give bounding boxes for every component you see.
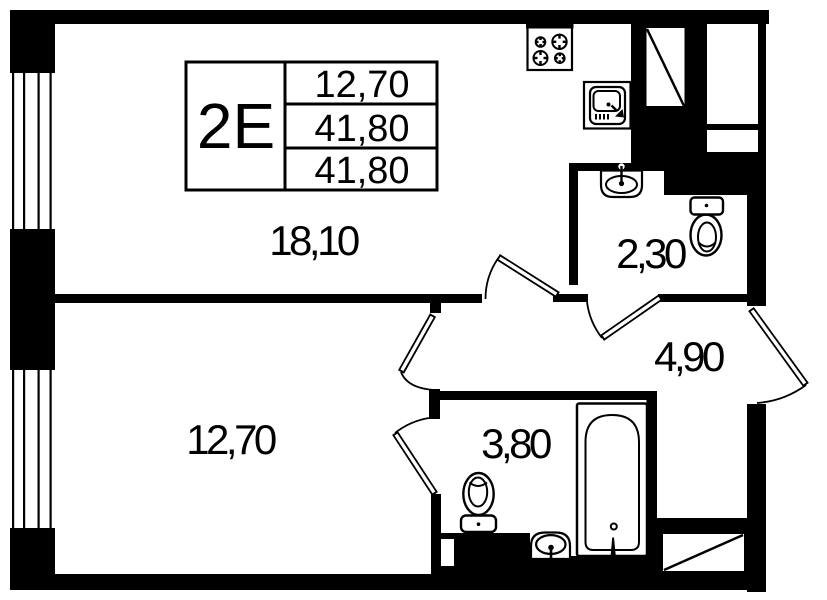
svg-text:2,30: 2,30 bbox=[616, 230, 686, 277]
svg-text:41,80: 41,80 bbox=[314, 150, 409, 192]
svg-text:12,70: 12,70 bbox=[186, 416, 276, 463]
svg-text:41,80: 41,80 bbox=[314, 108, 409, 150]
svg-text:2E: 2E bbox=[197, 90, 275, 162]
svg-text:18,10: 18,10 bbox=[269, 217, 359, 264]
svg-text:12,70: 12,70 bbox=[314, 64, 409, 106]
svg-text:3,80: 3,80 bbox=[481, 420, 551, 467]
svg-text:4,90: 4,90 bbox=[654, 333, 724, 380]
